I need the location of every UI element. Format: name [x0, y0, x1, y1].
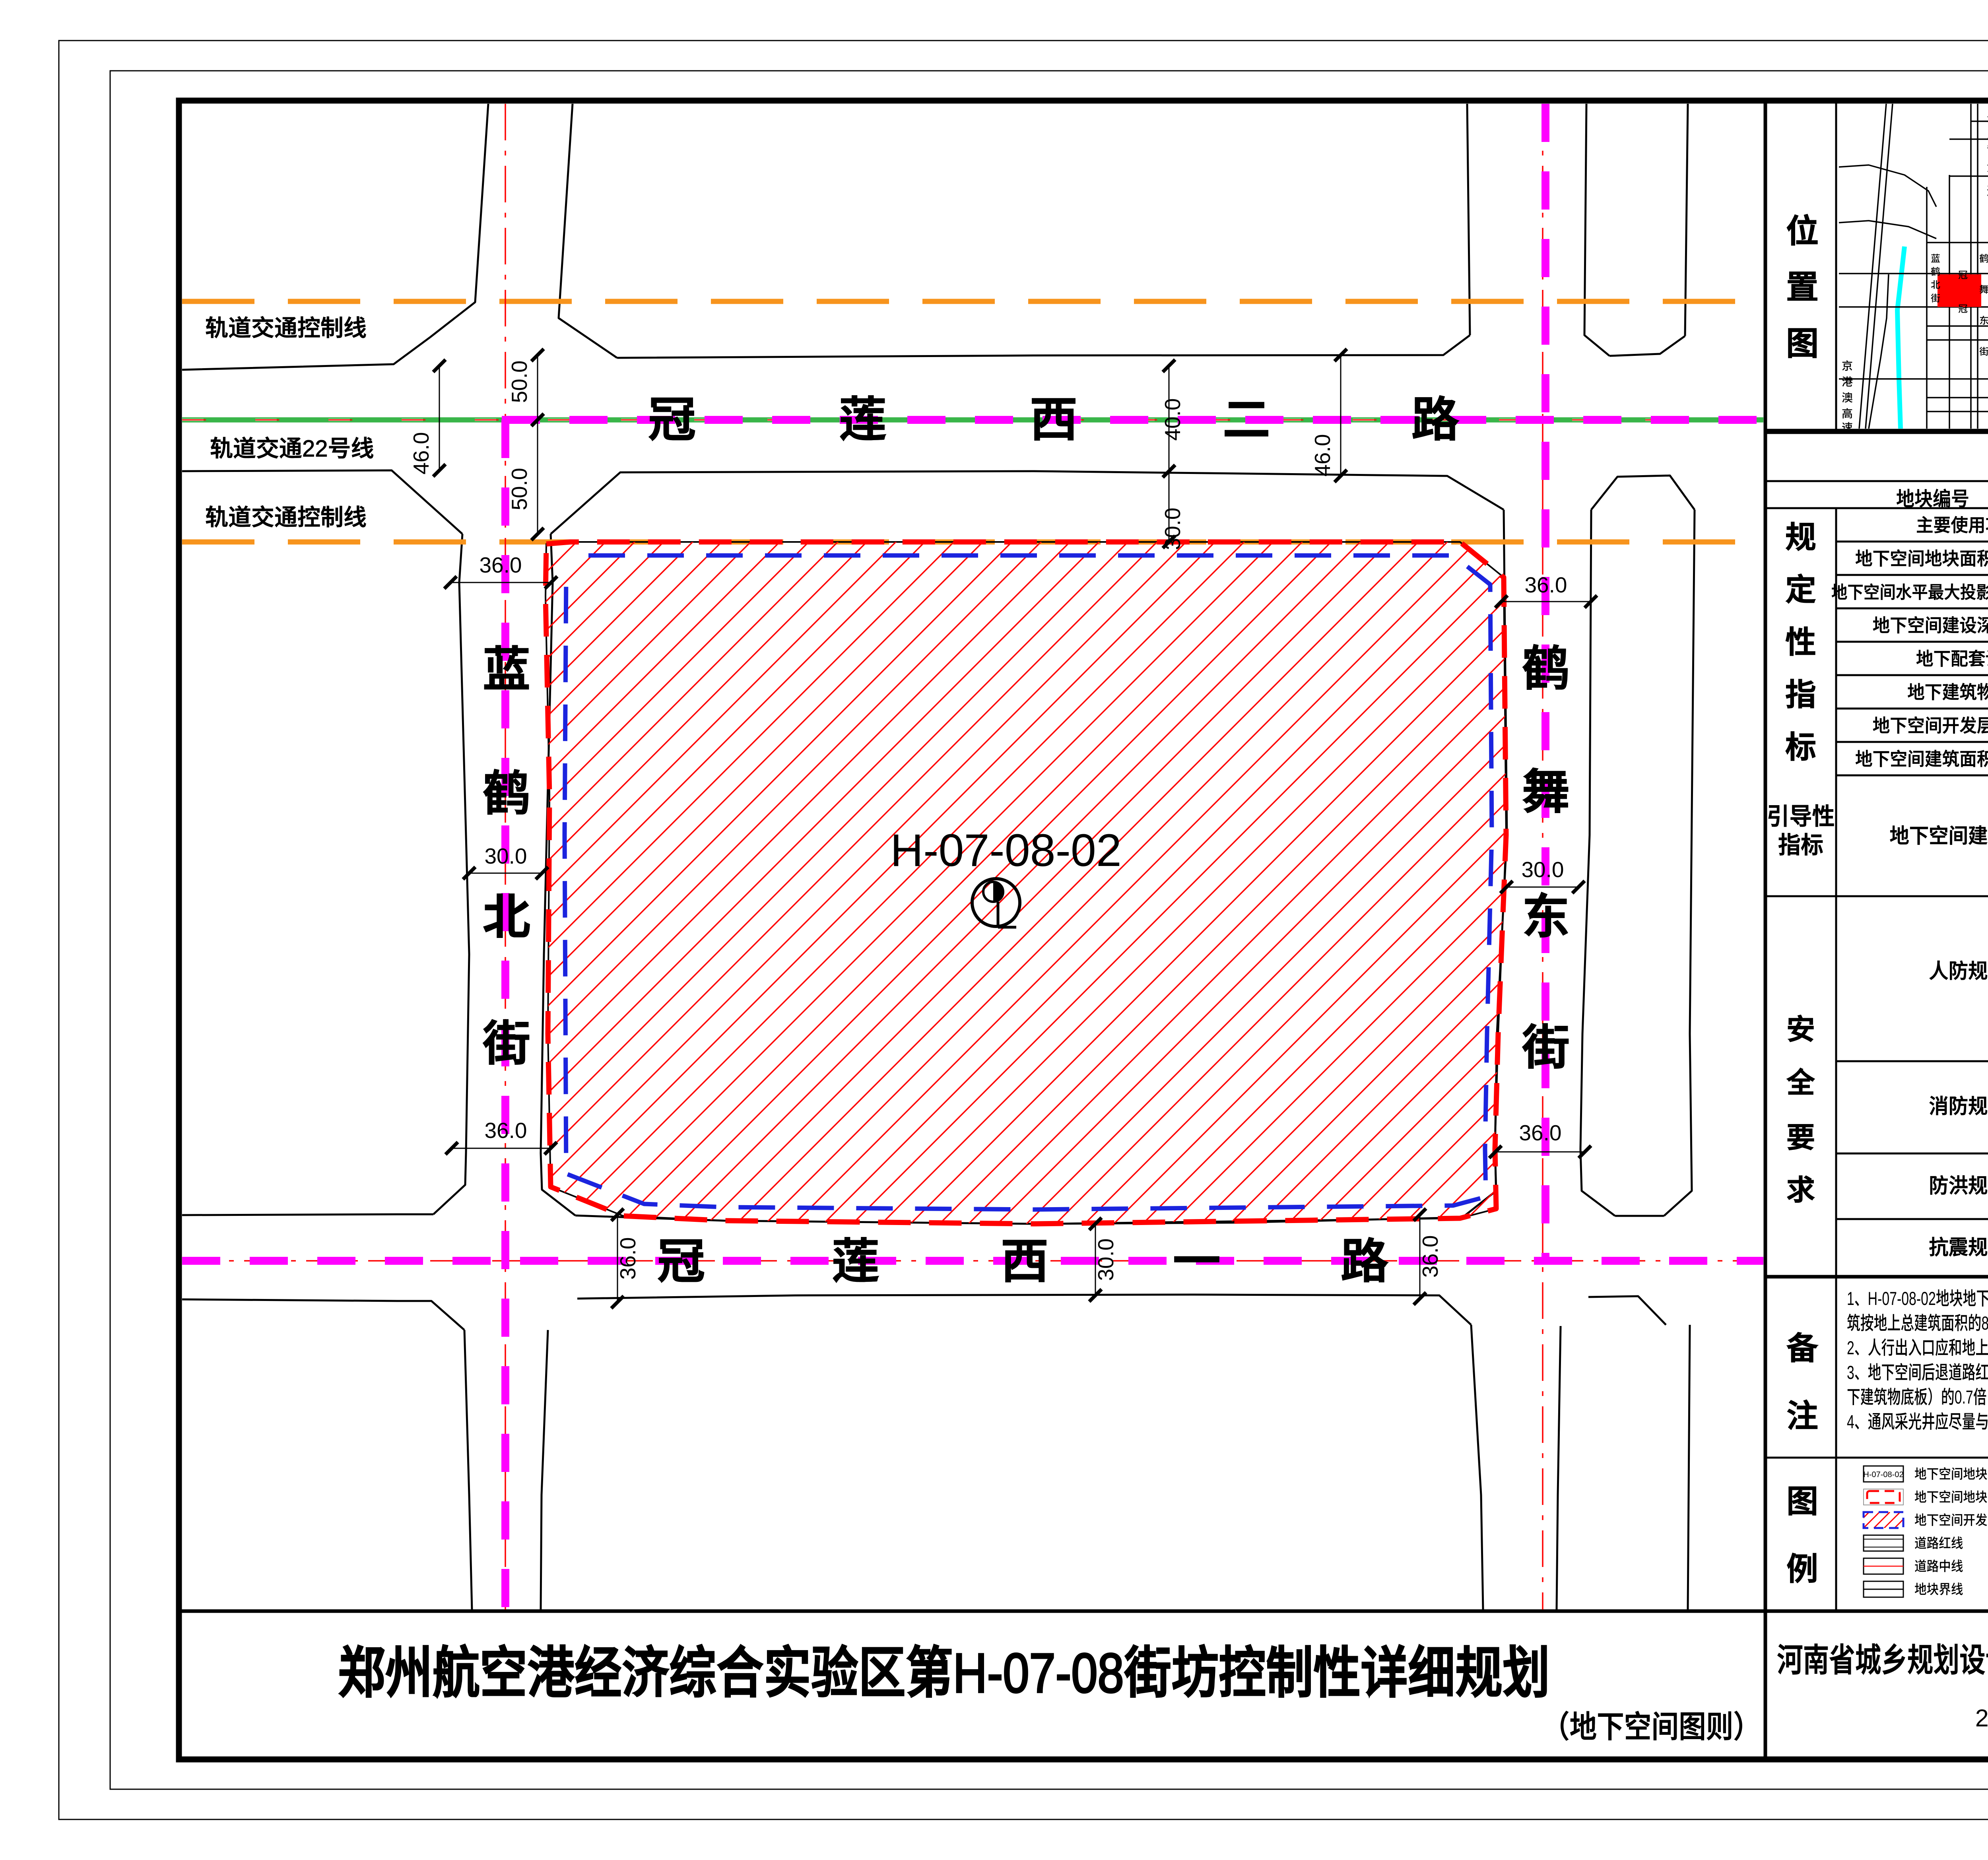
svg-text:H-07-08-02: H-07-08-02: [890, 825, 1122, 876]
svg-text:H-07-08-02: H-07-08-02: [1868, 1288, 1936, 1309]
svg-text:30.0: 30.0: [484, 844, 527, 868]
svg-text:36.0: 36.0: [615, 1237, 640, 1279]
svg-text:46.0: 46.0: [1310, 434, 1335, 476]
svg-text:8%: 8%: [1981, 1313, 1988, 1334]
svg-text:36.0: 36.0: [484, 1118, 527, 1143]
svg-text:H-07-08-02: H-07-08-02: [1863, 1470, 1903, 1479]
svg-text:22: 22: [302, 436, 328, 462]
svg-text:36.0: 36.0: [479, 553, 522, 577]
svg-text:0.7: 0.7: [1955, 1387, 1973, 1408]
svg-text:30.0: 30.0: [1160, 507, 1185, 550]
svg-text:46.0: 46.0: [409, 432, 433, 474]
svg-text:4: 4: [1847, 1412, 1854, 1433]
svg-text:30.0: 30.0: [1521, 857, 1564, 882]
svg-text:36.0: 36.0: [1519, 1120, 1561, 1145]
svg-text:36.0: 36.0: [1524, 573, 1567, 597]
svg-text:36.0: 36.0: [1418, 1235, 1442, 1278]
svg-text:40.0: 40.0: [1160, 398, 1185, 441]
svg-text:1: 1: [1847, 1288, 1854, 1309]
svg-text:2025.05: 2025.05: [1975, 1705, 1988, 1732]
svg-text:H-07-08: H-07-08: [953, 1642, 1124, 1704]
svg-text:50.0: 50.0: [507, 360, 532, 403]
svg-text:30.0: 30.0: [1093, 1238, 1118, 1281]
svg-text:50.0: 50.0: [507, 468, 532, 510]
svg-text:3: 3: [1847, 1362, 1854, 1383]
svg-text:2: 2: [1847, 1338, 1854, 1359]
